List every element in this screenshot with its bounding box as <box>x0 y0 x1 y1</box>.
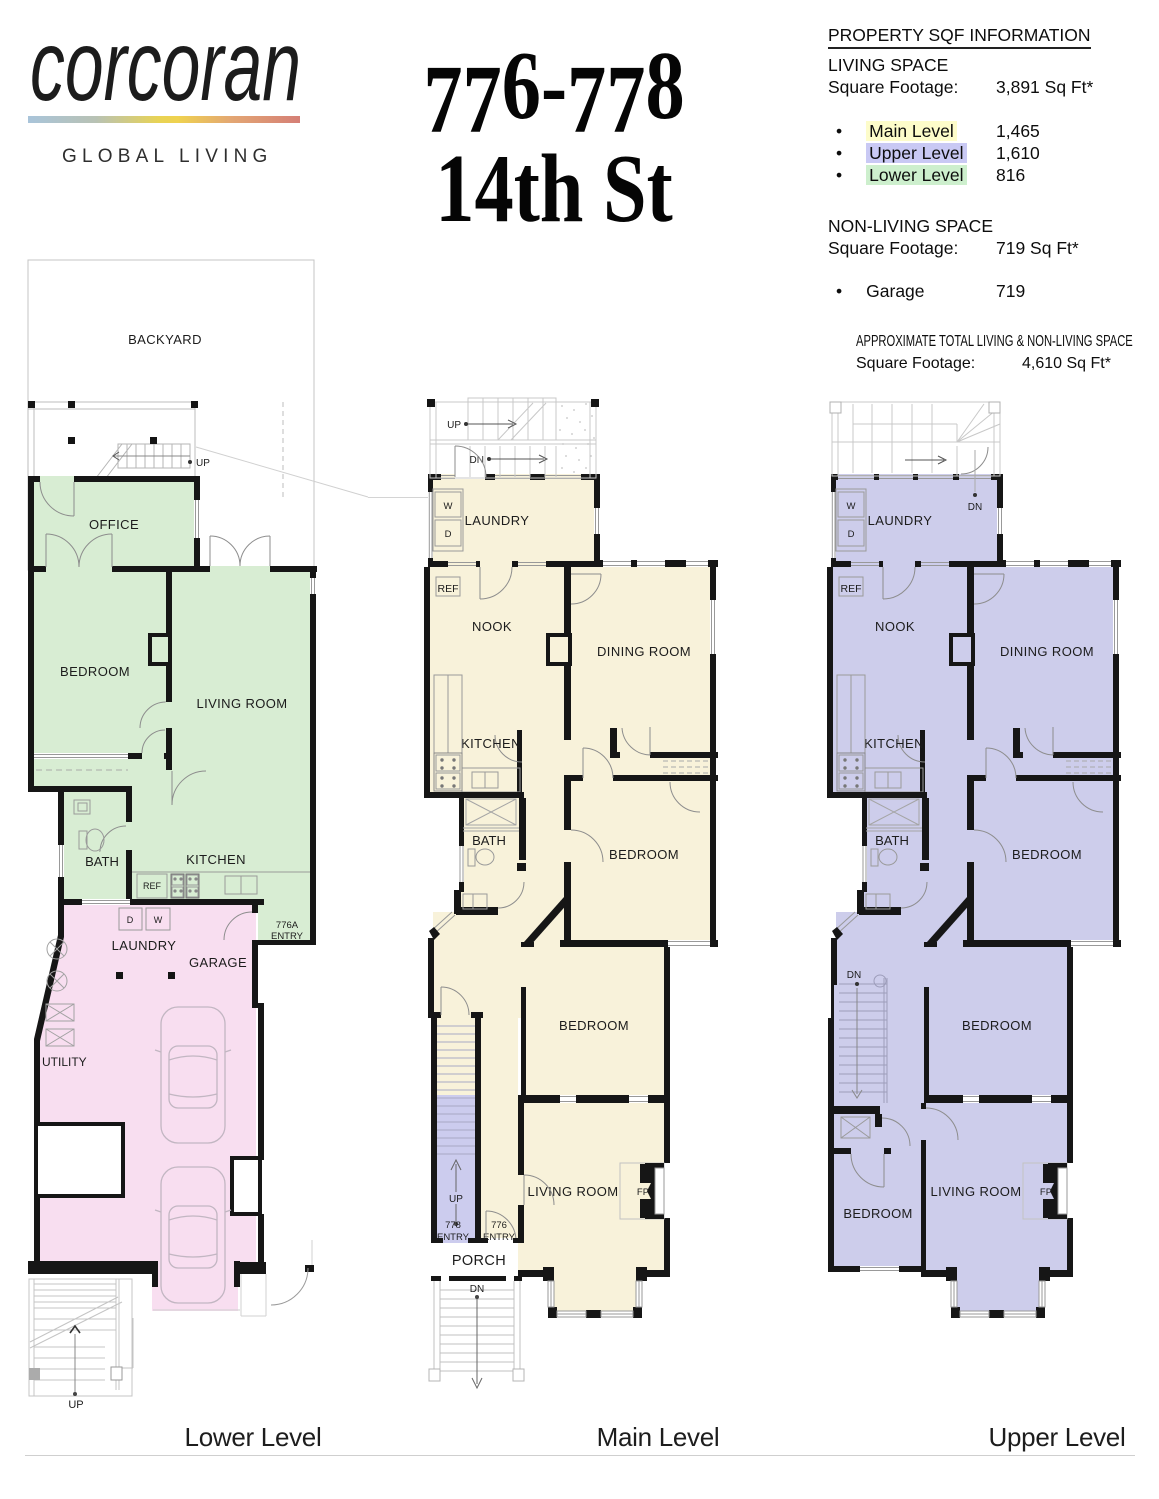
svg-text:DN: DN <box>968 502 982 513</box>
svg-text:778: 778 <box>445 1220 461 1231</box>
svg-text:D: D <box>127 915 134 925</box>
svg-text:NOOK: NOOK <box>472 619 512 634</box>
svg-text:FP: FP <box>1040 1187 1052 1198</box>
svg-text:DN: DN <box>470 1284 484 1295</box>
svg-text:LAUNDRY: LAUNDRY <box>465 513 530 528</box>
svg-text:FP: FP <box>637 1187 649 1198</box>
svg-text:PORCH: PORCH <box>452 1253 506 1269</box>
svg-text:BATH: BATH <box>85 854 119 869</box>
svg-text:KITCHEN: KITCHEN <box>186 852 246 867</box>
svg-text:BEDROOM: BEDROOM <box>559 1018 629 1033</box>
svg-text:UP: UP <box>68 1399 83 1411</box>
svg-text:BEDROOM: BEDROOM <box>962 1018 1032 1033</box>
svg-text:LIVING ROOM: LIVING ROOM <box>930 1184 1021 1199</box>
svg-text:DINING ROOM: DINING ROOM <box>597 644 691 659</box>
svg-text:UP: UP <box>449 1194 463 1205</box>
svg-text:REF: REF <box>143 881 162 891</box>
svg-text:DN: DN <box>847 970 861 981</box>
svg-text:W: W <box>154 915 163 925</box>
svg-text:776A: 776A <box>276 920 299 931</box>
svg-text:BEDROOM: BEDROOM <box>609 847 679 862</box>
svg-text:W: W <box>444 501 453 512</box>
svg-text:776: 776 <box>491 1220 507 1231</box>
svg-text:UP: UP <box>447 420 461 431</box>
svg-text:BEDROOM: BEDROOM <box>60 664 130 679</box>
svg-text:LAUNDRY: LAUNDRY <box>112 938 177 953</box>
svg-text:REF: REF <box>438 583 459 595</box>
svg-text:GARAGE: GARAGE <box>189 955 247 970</box>
svg-text:D: D <box>445 529 452 540</box>
svg-text:KITCHEN: KITCHEN <box>461 736 521 751</box>
svg-text:LIVING ROOM: LIVING ROOM <box>196 696 287 711</box>
svg-text:BATH: BATH <box>472 833 506 848</box>
svg-text:UTILITY: UTILITY <box>42 1055 87 1069</box>
svg-text:BEDROOM: BEDROOM <box>843 1206 912 1221</box>
svg-text:UP: UP <box>196 458 210 469</box>
svg-text:LIVING ROOM: LIVING ROOM <box>527 1184 618 1199</box>
svg-text:corcoran: corcoran <box>30 10 301 115</box>
svg-text:BACKYARD: BACKYARD <box>128 332 202 347</box>
svg-text:OFFICE: OFFICE <box>89 517 139 532</box>
